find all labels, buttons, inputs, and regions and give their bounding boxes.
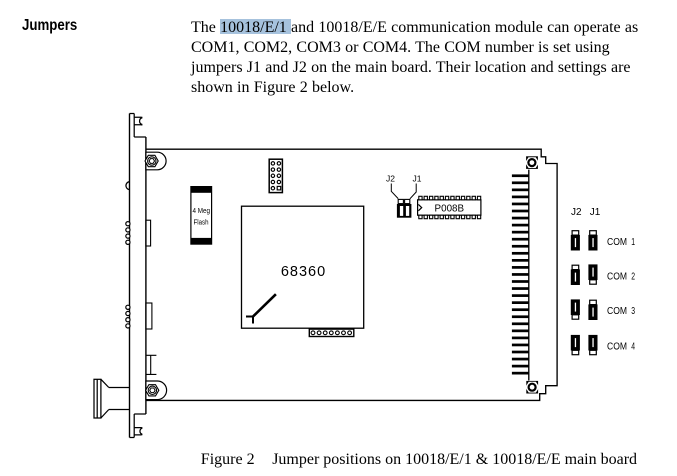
svg-text:2: 2 [631,271,635,283]
svg-text:COM: COM [607,271,627,283]
svg-text:J1: J1 [413,174,422,184]
svg-text:J2: J2 [571,207,582,218]
svg-text:3: 3 [631,305,635,317]
svg-text:P008B: P008B [435,203,465,215]
svg-text:COM: COM [607,341,627,353]
svg-text:4: 4 [631,341,635,353]
svg-text:Flash: Flash [194,218,209,227]
svg-text:68360: 68360 [281,264,326,280]
svg-text:J1: J1 [590,207,601,218]
svg-text:COM: COM [607,236,627,248]
svg-text:4 Meg: 4 Meg [193,206,211,215]
svg-text:COM: COM [607,305,627,317]
svg-text:1: 1 [631,236,635,248]
svg-text:J2: J2 [386,174,395,184]
